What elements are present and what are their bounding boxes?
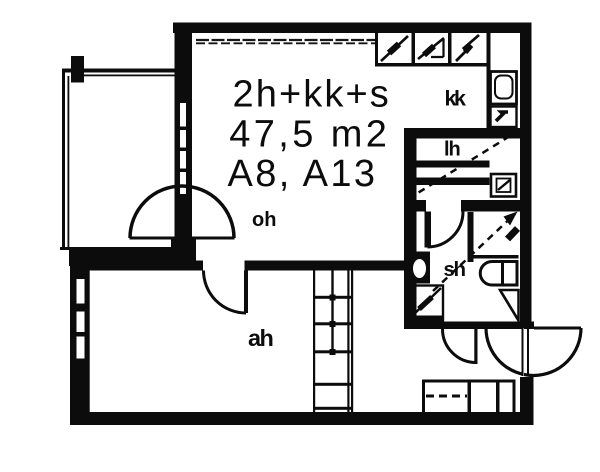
svg-text:oh: oh [252, 209, 276, 231]
svg-text:lh: lh [444, 139, 460, 161]
svg-text:sh: sh [444, 258, 466, 281]
svg-text:2h+kk+s: 2h+kk+s [233, 74, 391, 116]
svg-text:47,5 m2: 47,5 m2 [229, 113, 390, 155]
svg-text:A8, A13: A8, A13 [228, 153, 378, 195]
svg-text:ah: ah [248, 325, 272, 351]
svg-text:kk: kk [445, 87, 466, 111]
